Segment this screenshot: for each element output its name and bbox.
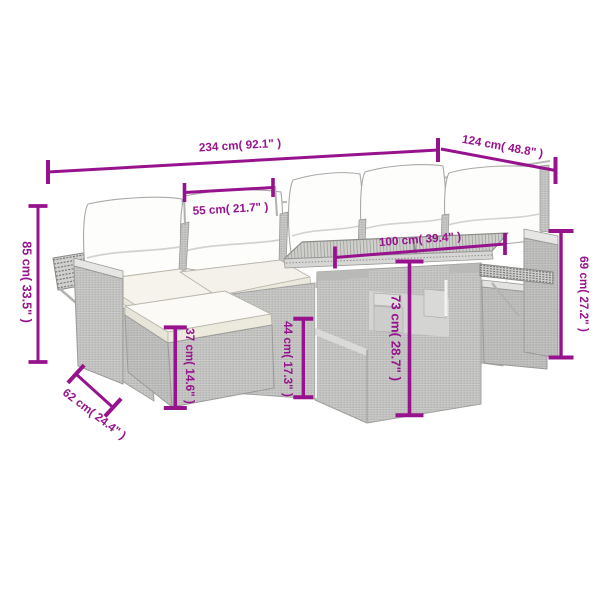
svg-text:37 cm( 14.6" ): 37 cm( 14.6" ) xyxy=(183,328,196,404)
svg-text:85 cm( 33.5" ): 85 cm( 33.5" ) xyxy=(20,241,34,323)
svg-text:44 cm( 17.3" ): 44 cm( 17.3" ) xyxy=(281,321,294,397)
svg-text:73 cm( 28.7" ): 73 cm( 28.7" ) xyxy=(388,295,403,381)
svg-text:69 cm( 27.2" ): 69 cm( 27.2" ) xyxy=(577,256,590,332)
